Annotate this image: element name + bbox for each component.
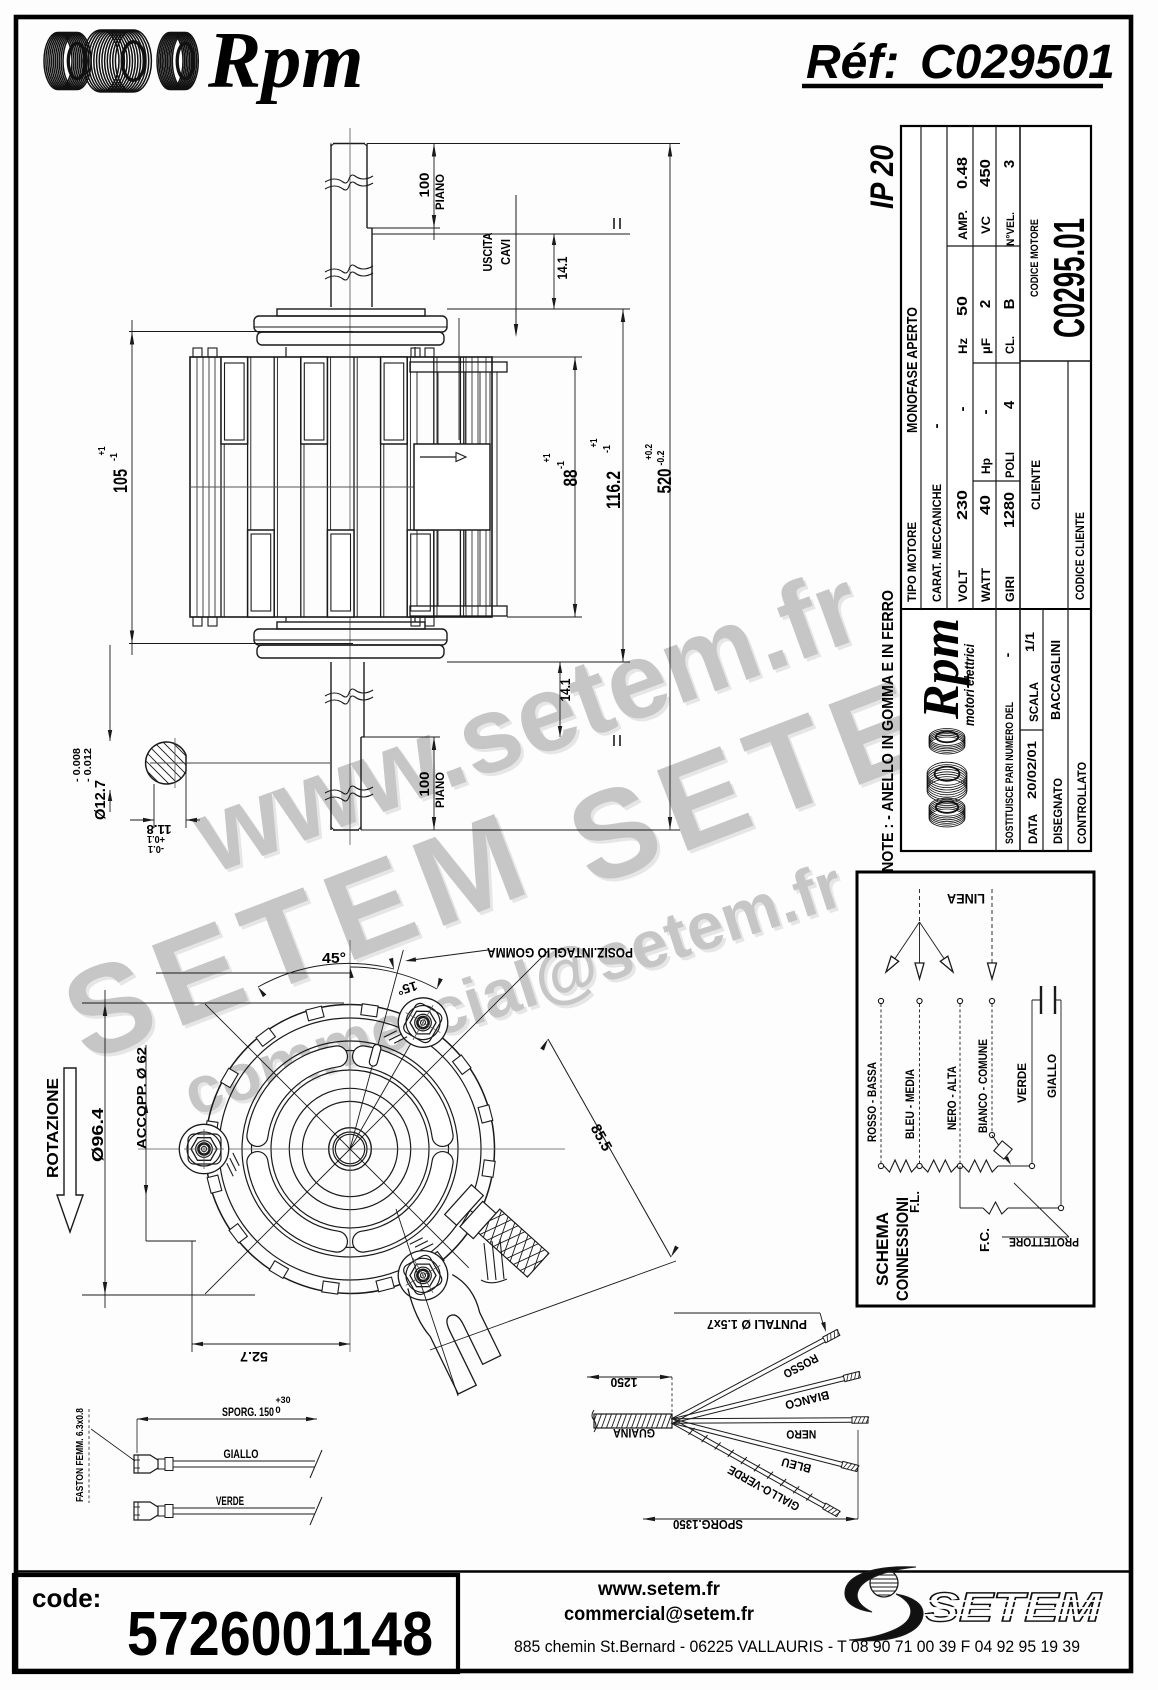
svg-text:-0.1: -0.1 xyxy=(148,843,164,855)
svg-text:SCALA: SCALA xyxy=(1027,682,1041,722)
svg-text:NERO - ALTA: NERO - ALTA xyxy=(945,1066,959,1130)
svg-text:CARAT. MECCANICHE: CARAT. MECCANICHE xyxy=(930,484,944,602)
svg-text:-: - xyxy=(999,652,1015,657)
svg-text:TIPO MOTORE: TIPO MOTORE xyxy=(905,522,919,602)
svg-text:SETEM: SETEM xyxy=(925,1584,1102,1630)
svg-text:FASTON FEMM. 6.3x0.8: FASTON FEMM. 6.3x0.8 xyxy=(74,1408,86,1502)
svg-text:GIRI: GIRI xyxy=(1003,576,1017,602)
svg-text:GUAINA: GUAINA xyxy=(613,1426,655,1440)
svg-text:AMP.: AMP. xyxy=(956,210,970,240)
svg-text:NERO: NERO xyxy=(786,1427,816,1441)
svg-text:-: - xyxy=(928,424,945,429)
svg-text:POSIZ.INTAGLIO GOMMA: POSIZ.INTAGLIO GOMMA xyxy=(487,945,633,960)
svg-text:DISEGNATO: DISEGNATO xyxy=(1051,778,1065,844)
svg-text:52.7: 52.7 xyxy=(240,1349,268,1365)
svg-text:50: 50 xyxy=(954,296,971,316)
svg-text:DATA: DATA xyxy=(1026,814,1040,844)
svg-text:4: 4 xyxy=(1001,400,1018,409)
svg-text:14.1: 14.1 xyxy=(558,678,573,701)
svg-text:BIANCO - COMUNE: BIANCO - COMUNE xyxy=(976,1039,990,1133)
svg-text:+1: +1 xyxy=(96,446,108,455)
svg-text:CAVI: CAVI xyxy=(499,239,513,265)
svg-text:CL.: CL. xyxy=(1003,336,1017,354)
svg-text:VERDE: VERDE xyxy=(1015,1063,1029,1103)
svg-text:SPORG. 150: SPORG. 150 xyxy=(222,1405,274,1419)
svg-text:POLI: POLI xyxy=(1003,452,1017,478)
svg-text:100: 100 xyxy=(417,173,432,198)
svg-text:Hz: Hz xyxy=(956,338,970,354)
svg-text:µF: µF xyxy=(979,338,993,354)
svg-text:C0295.01: C0295.01 xyxy=(1045,218,1094,338)
svg-text:NOTE : - ANELLO IN GOMMA E IN: NOTE : - ANELLO IN GOMMA E IN FERRO xyxy=(880,590,897,872)
svg-text:520: 520 xyxy=(655,469,676,494)
svg-text:SCHEMA: SCHEMA xyxy=(873,1212,892,1286)
svg-text:N°VEL.: N°VEL. xyxy=(1005,212,1017,246)
svg-text:-0.2: -0.2 xyxy=(655,450,667,465)
svg-text:WATT: WATT xyxy=(979,567,993,602)
svg-text:BACCAGLINI: BACCAGLINI xyxy=(1048,640,1063,720)
svg-text:SPORG.1350: SPORG.1350 xyxy=(673,1517,743,1531)
svg-text:100: 100 xyxy=(417,772,432,797)
svg-text:VOLT: VOLT xyxy=(956,569,970,602)
svg-text:Réf:C029501: Réf:C029501 xyxy=(806,36,1115,89)
svg-text:1/1: 1/1 xyxy=(1023,632,1037,652)
svg-text:ROSSO - BASSA: ROSSO - BASSA xyxy=(865,1062,879,1142)
svg-text:14.1: 14.1 xyxy=(555,256,570,279)
svg-text:0: 0 xyxy=(275,1405,280,1416)
svg-text:F.L.: F.L. xyxy=(907,1191,922,1213)
svg-text:- 0.012: - 0.012 xyxy=(82,748,94,782)
svg-text:450: 450 xyxy=(977,159,994,187)
svg-text:LINEA: LINEA xyxy=(947,891,985,907)
svg-text:-1: -1 xyxy=(601,445,613,453)
svg-text:Ø12.7: Ø12.7 xyxy=(93,780,109,820)
svg-text:ACCOPP. Ø 62: ACCOPP. Ø 62 xyxy=(134,1047,149,1149)
svg-text:20/02/01: 20/02/01 xyxy=(1025,741,1039,799)
svg-text:-: - xyxy=(954,407,971,412)
svg-text:0.48: 0.48 xyxy=(954,157,971,189)
svg-text:GIALLO: GIALLO xyxy=(1045,1054,1059,1098)
svg-text:GIALLO: GIALLO xyxy=(224,1447,259,1461)
svg-text:commercial@setem.fr: commercial@setem.fr xyxy=(564,1604,755,1625)
svg-text:CODICE CLIENTE: CODICE CLIENTE xyxy=(1073,512,1087,600)
svg-text:SOSTITUISCE PARI NUMERO DEL: SOSTITUISCE PARI NUMERO DEL xyxy=(1004,702,1016,844)
svg-text:PIANO: PIANO xyxy=(435,772,447,808)
svg-text:+1: +1 xyxy=(588,438,600,447)
svg-text:3: 3 xyxy=(1001,160,1018,168)
svg-text:1280: 1280 xyxy=(1001,492,1018,528)
svg-text:Ø96.4: Ø96.4 xyxy=(90,1108,107,1162)
svg-text:ROTAZIONE: ROTAZIONE xyxy=(45,1078,62,1178)
svg-text:5726001148: 5726001148 xyxy=(127,1600,433,1669)
svg-text:1250: 1250 xyxy=(610,1375,637,1389)
svg-text:VC: VC xyxy=(979,216,993,234)
svg-text:CONTROLLATO: CONTROLLATO xyxy=(1075,762,1089,844)
svg-text:Hp: Hp xyxy=(979,458,993,474)
svg-text:-: - xyxy=(977,410,994,415)
svg-text:B: B xyxy=(1001,298,1018,309)
svg-text:+0.2: +0.2 xyxy=(643,444,655,460)
svg-text:885 chemin St.Bernard - 0622: 885 chemin St.Bernard - 06225 VALLAURIS … xyxy=(514,1637,1080,1656)
svg-text:PUNTALI Ø 1.5x7: PUNTALI Ø 1.5x7 xyxy=(707,1317,807,1331)
svg-text:USCITA: USCITA xyxy=(481,233,495,272)
svg-text:+1: +1 xyxy=(541,453,553,462)
svg-text:www.setem.fr: www.setem.fr xyxy=(597,1579,721,1600)
svg-text:40: 40 xyxy=(977,495,994,515)
svg-text:PIANO: PIANO xyxy=(435,174,447,210)
svg-text:2: 2 xyxy=(977,300,994,308)
svg-text:-1: -1 xyxy=(555,461,567,469)
svg-text:IP 20: IP 20 xyxy=(864,145,900,209)
svg-text:BLEU - MEDIA: BLEU - MEDIA xyxy=(903,1069,917,1139)
svg-text:F.C.: F.C. xyxy=(977,1228,992,1252)
svg-text:CODICE MOTORE: CODICE MOTORE xyxy=(1029,219,1041,297)
svg-text:motori elettrici: motori elettrici xyxy=(962,644,977,726)
svg-text:VERDE: VERDE xyxy=(216,1494,244,1508)
svg-text:CLIENTE: CLIENTE xyxy=(1029,460,1043,510)
svg-text:88: 88 xyxy=(561,470,582,487)
svg-text:Rpm: Rpm xyxy=(207,17,364,105)
svg-text:230: 230 xyxy=(954,490,971,520)
svg-text:116.2: 116.2 xyxy=(604,471,625,509)
svg-text:code:: code: xyxy=(32,1583,101,1613)
svg-text:105: 105 xyxy=(111,469,132,493)
svg-text:45°: 45° xyxy=(322,950,346,967)
svg-text:MONOFASE APERTO: MONOFASE APERTO xyxy=(904,307,921,433)
svg-text:-1: -1 xyxy=(108,453,120,461)
